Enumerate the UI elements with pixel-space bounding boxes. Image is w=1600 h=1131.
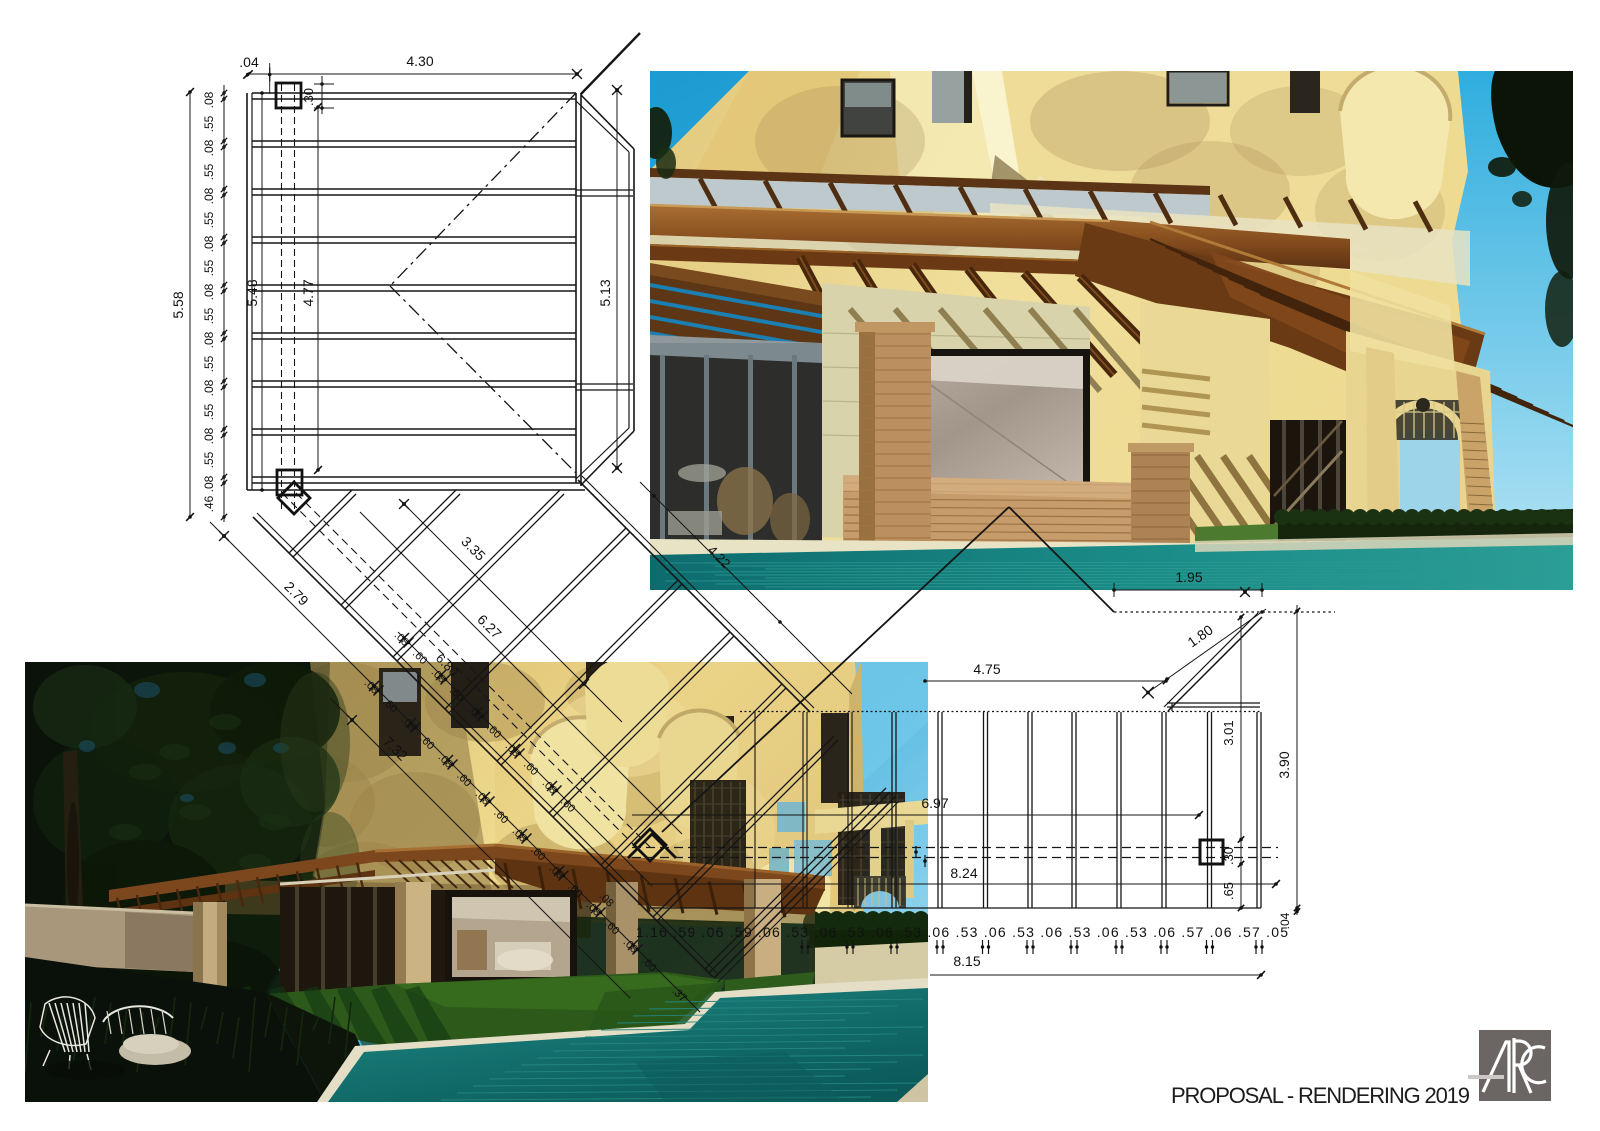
svg-text:.08: .08 [202, 331, 216, 348]
svg-text:PROPOSAL - RENDERING 2019: PROPOSAL - RENDERING 2019 [1171, 1083, 1470, 1108]
svg-text:4.77: 4.77 [300, 279, 316, 306]
svg-text:.55: .55 [202, 163, 216, 180]
svg-text:.55: .55 [202, 259, 216, 276]
svg-text:.08: .08 [202, 475, 216, 492]
svg-text:.55: .55 [202, 355, 216, 372]
svg-text:.08: .08 [202, 187, 216, 204]
svg-text:.08: .08 [202, 139, 216, 156]
svg-text:4.30: 4.30 [406, 53, 433, 69]
svg-text:.30: .30 [301, 88, 316, 106]
svg-text:8.15: 8.15 [953, 953, 980, 969]
svg-text:.55: .55 [202, 403, 216, 420]
svg-text:.55: .55 [202, 211, 216, 228]
svg-text:.08: .08 [202, 91, 216, 108]
svg-text:.55: .55 [202, 115, 216, 132]
svg-text:5.13: 5.13 [597, 279, 613, 306]
svg-text:.55: .55 [202, 451, 216, 468]
svg-text:4.75: 4.75 [973, 661, 1000, 677]
svg-text:5.48: 5.48 [244, 279, 260, 306]
svg-text:.55: .55 [202, 307, 216, 324]
svg-text:.08: .08 [202, 427, 216, 444]
svg-text:.04: .04 [239, 54, 259, 70]
svg-text:3.01: 3.01 [1221, 720, 1236, 745]
svg-text:8.24: 8.24 [950, 865, 977, 881]
svg-text:.30: .30 [1221, 847, 1236, 865]
svg-text:.46: .46 [202, 495, 216, 512]
svg-text:.08: .08 [202, 283, 216, 300]
svg-text:.08: .08 [202, 379, 216, 396]
svg-text:6.97: 6.97 [921, 795, 948, 811]
svg-text:1.95: 1.95 [1175, 569, 1202, 585]
svg-text:3.90: 3.90 [1276, 751, 1292, 778]
svg-text:.08: .08 [202, 235, 216, 252]
svg-text:5.58: 5.58 [170, 291, 186, 318]
svg-text:.65: .65 [1221, 882, 1236, 900]
svg-text:1.16 .59 .06 .59 .06 .53 .06 .: 1.16 .59 .06 .59 .06 .53 .06 .53 .06 .53… [636, 924, 1288, 940]
